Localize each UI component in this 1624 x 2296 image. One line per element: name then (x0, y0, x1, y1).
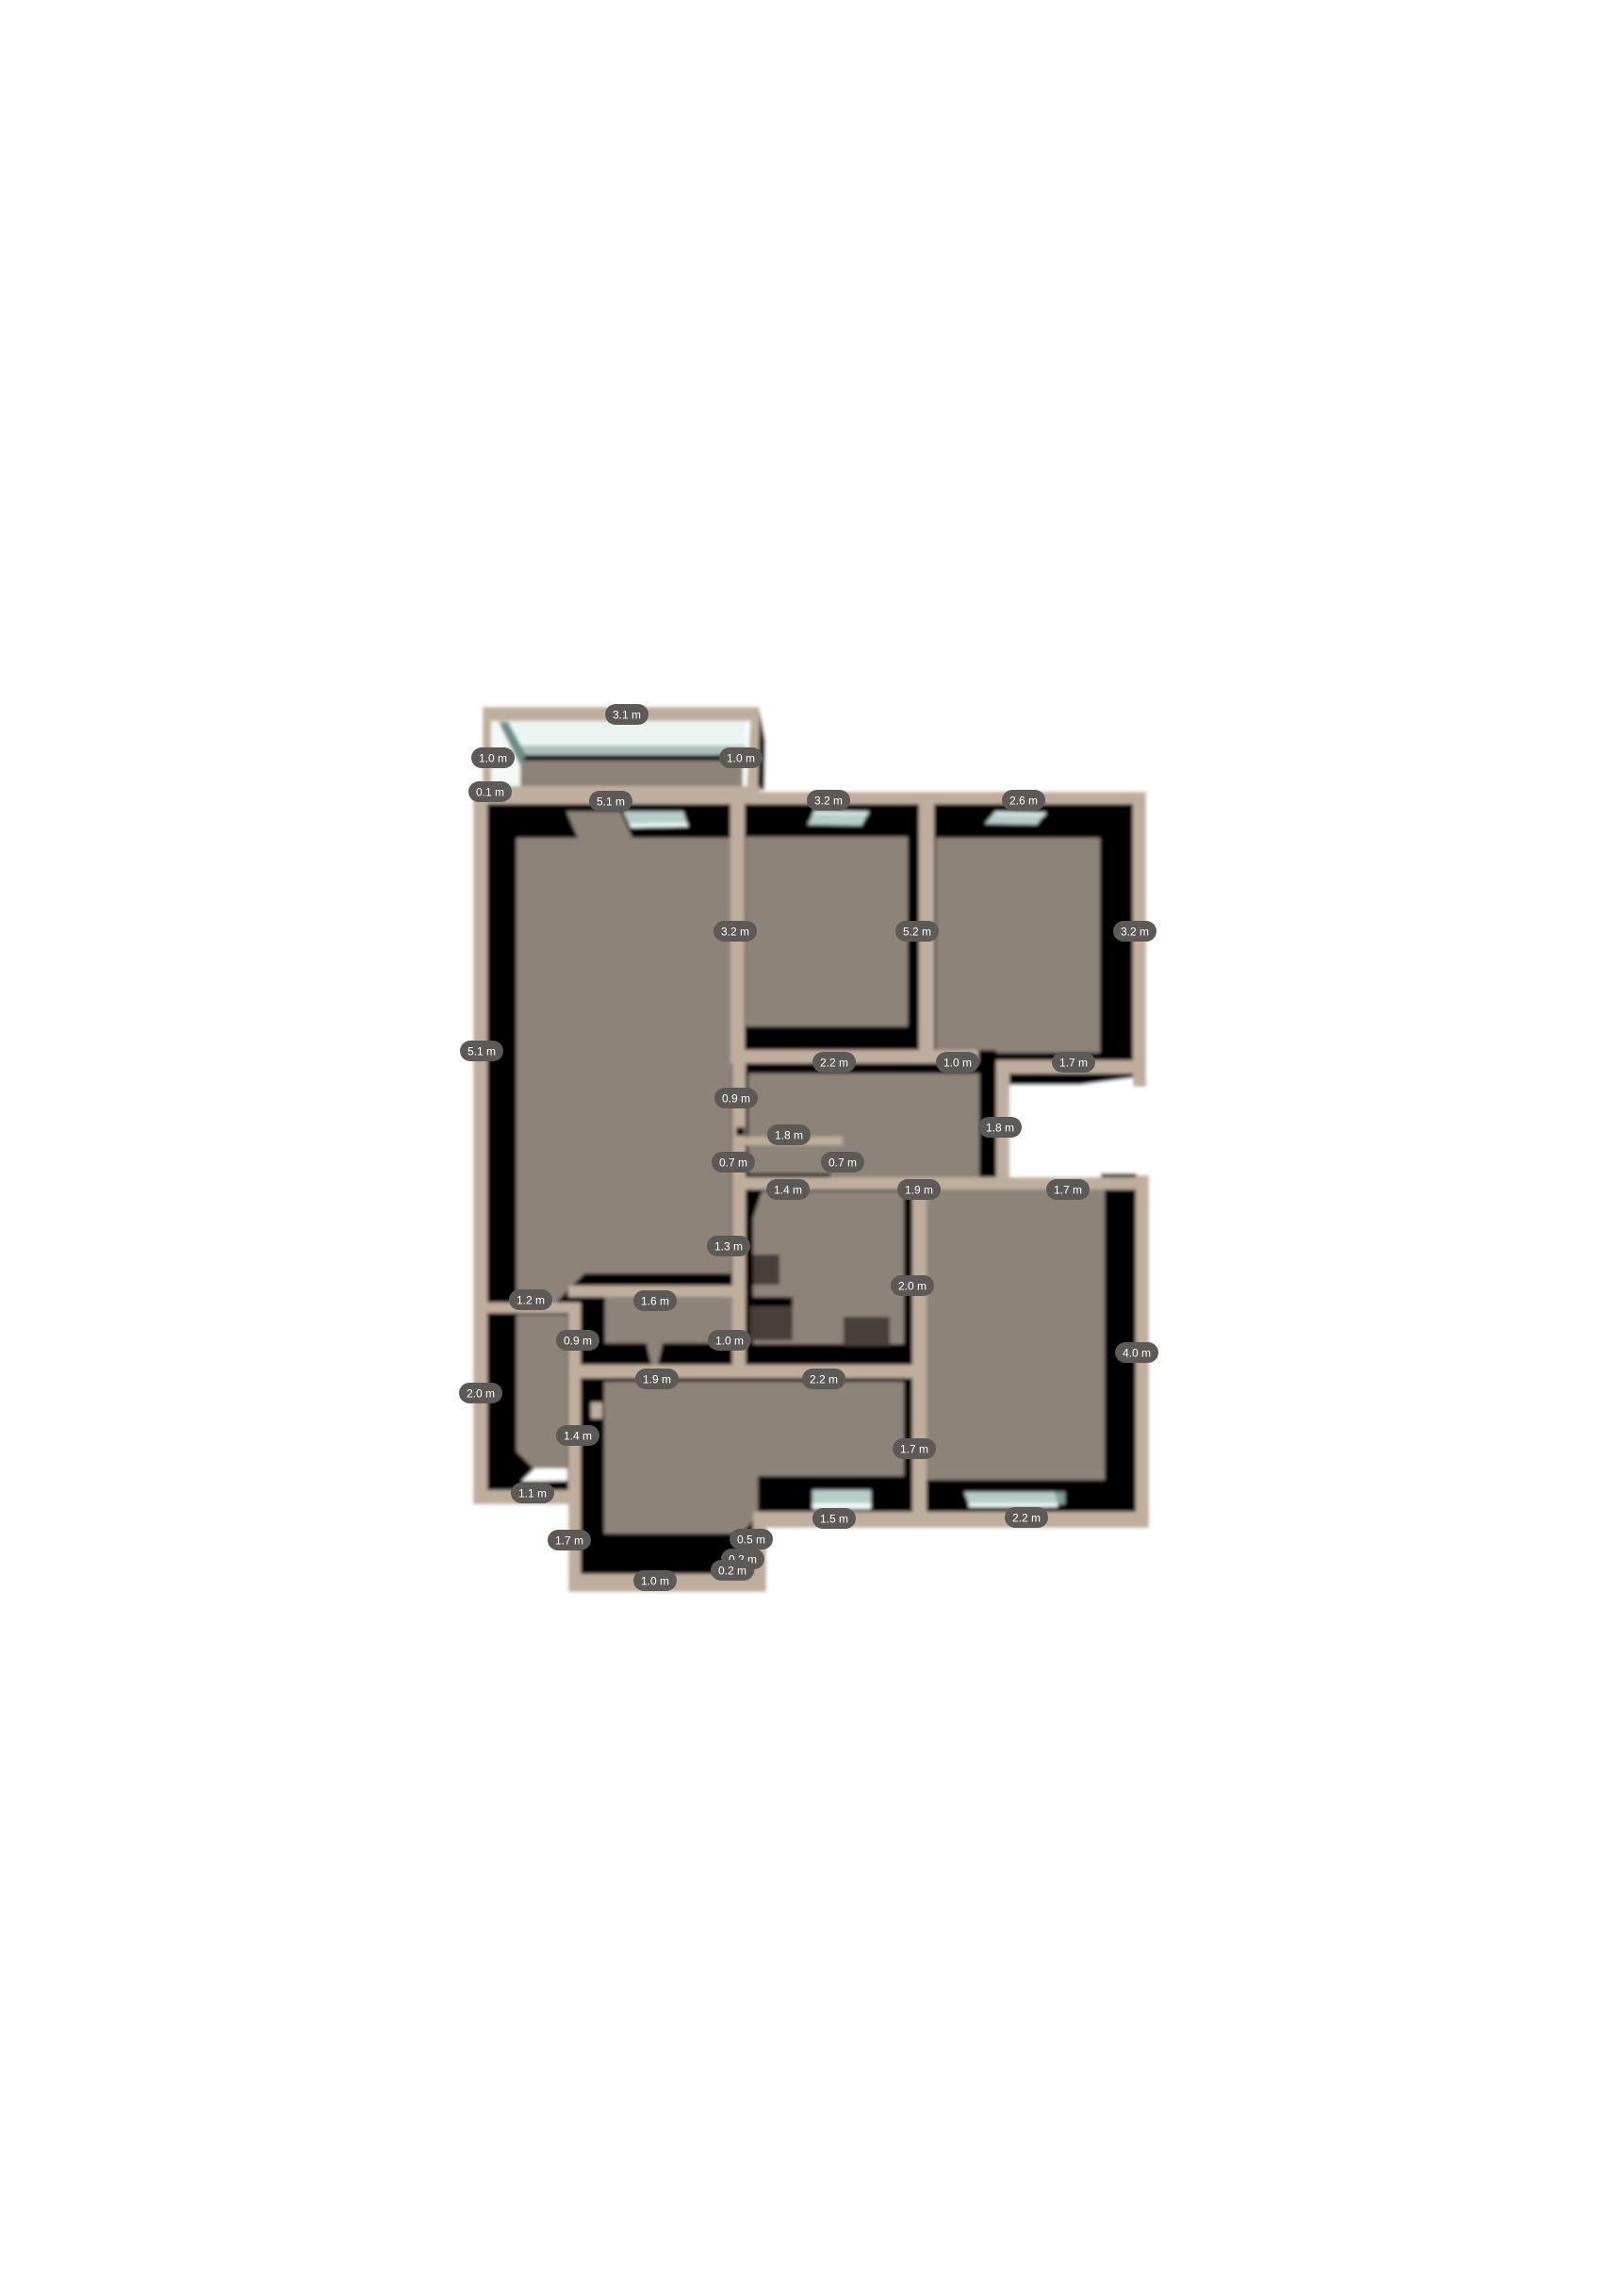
svg-text:1.8 m: 1.8 m (986, 1122, 1014, 1135)
svg-text:1.4 m: 1.4 m (564, 1430, 592, 1443)
svg-text:1.2 m: 1.2 m (517, 1294, 545, 1307)
svg-text:2.2 m: 2.2 m (1012, 1512, 1041, 1525)
svg-text:1.0 m: 1.0 m (727, 752, 755, 765)
svg-text:2.2 m: 2.2 m (820, 1057, 848, 1070)
svg-text:0.9 m: 0.9 m (564, 1335, 592, 1348)
svg-text:3.2 m: 3.2 m (1121, 926, 1149, 939)
svg-text:0.2 m: 0.2 m (718, 1565, 746, 1578)
svg-text:0.5 m: 0.5 m (737, 1533, 765, 1547)
svg-text:1.7 m: 1.7 m (1059, 1057, 1088, 1070)
svg-text:1.4 m: 1.4 m (774, 1184, 802, 1197)
svg-text:1.0 m: 1.0 m (943, 1057, 972, 1070)
svg-text:1.9 m: 1.9 m (643, 1373, 671, 1386)
svg-text:4.0 m: 4.0 m (1123, 1347, 1151, 1360)
svg-text:0.9 m: 0.9 m (722, 1092, 750, 1106)
svg-text:1.0 m: 1.0 m (641, 1575, 669, 1588)
svg-text:3.2 m: 3.2 m (721, 926, 749, 939)
svg-text:3.1 m: 3.1 m (613, 709, 641, 722)
svg-text:5.1 m: 5.1 m (468, 1045, 496, 1058)
svg-text:1.0 m: 1.0 m (715, 1335, 744, 1348)
svg-text:5.1 m: 5.1 m (597, 795, 625, 809)
svg-text:0.7 m: 0.7 m (719, 1156, 747, 1170)
svg-text:2.0 m: 2.0 m (898, 1280, 927, 1293)
svg-text:3.2 m: 3.2 m (814, 795, 843, 808)
svg-text:1.7 m: 1.7 m (555, 1534, 583, 1548)
svg-text:5.2 m: 5.2 m (903, 926, 931, 939)
svg-text:1.5 m: 1.5 m (820, 1513, 848, 1526)
svg-text:2.6 m: 2.6 m (1009, 795, 1038, 808)
svg-text:1.1 m: 1.1 m (518, 1487, 547, 1501)
svg-text:1.3 m: 1.3 m (714, 1240, 743, 1254)
svg-text:2.2 m: 2.2 m (810, 1373, 838, 1386)
svg-text:1.8 m: 1.8 m (775, 1129, 803, 1142)
svg-text:1.0 m: 1.0 m (479, 752, 507, 765)
svg-text:2.0 m: 2.0 m (467, 1387, 495, 1401)
svg-text:0.7 m: 0.7 m (828, 1156, 857, 1170)
svg-text:0.1 m: 0.1 m (476, 786, 504, 799)
svg-text:1.6 m: 1.6 m (641, 1295, 669, 1308)
svg-text:1.9 m: 1.9 m (905, 1184, 933, 1197)
svg-text:1.7 m: 1.7 m (1054, 1184, 1082, 1197)
svg-text:1.7 m: 1.7 m (900, 1443, 928, 1456)
